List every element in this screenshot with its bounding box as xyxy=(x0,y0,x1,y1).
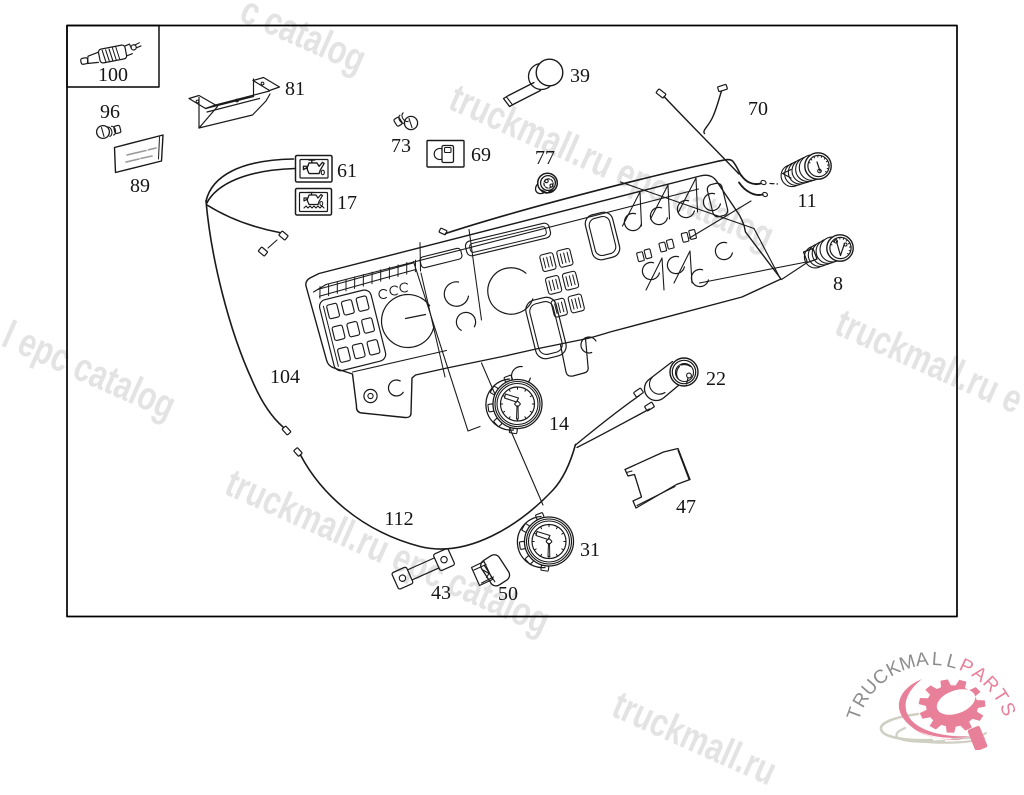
svg-text:17: 17 xyxy=(337,192,357,214)
svg-text:69: 69 xyxy=(471,144,491,166)
svg-text:A: A xyxy=(915,649,932,671)
svg-text:22: 22 xyxy=(706,368,726,390)
svg-text:100: 100 xyxy=(98,64,128,86)
svg-text:14: 14 xyxy=(549,413,569,435)
svg-text:39: 39 xyxy=(570,65,590,87)
svg-text:8: 8 xyxy=(833,273,843,295)
svg-text:81: 81 xyxy=(285,78,305,100)
svg-text:70: 70 xyxy=(748,98,768,120)
svg-text:96: 96 xyxy=(100,101,120,123)
svg-text:43: 43 xyxy=(431,582,451,604)
svg-text:89: 89 xyxy=(130,175,150,197)
svg-text:61: 61 xyxy=(337,160,357,182)
svg-text:47: 47 xyxy=(676,496,696,518)
svg-text:L: L xyxy=(931,649,945,671)
svg-text:31: 31 xyxy=(580,539,600,561)
svg-text:50: 50 xyxy=(498,583,518,605)
svg-text:104: 104 xyxy=(270,366,300,388)
svg-text:77: 77 xyxy=(535,147,555,169)
svg-text:11: 11 xyxy=(797,190,816,212)
svg-text:112: 112 xyxy=(384,508,413,530)
svg-text:73: 73 xyxy=(391,135,411,157)
